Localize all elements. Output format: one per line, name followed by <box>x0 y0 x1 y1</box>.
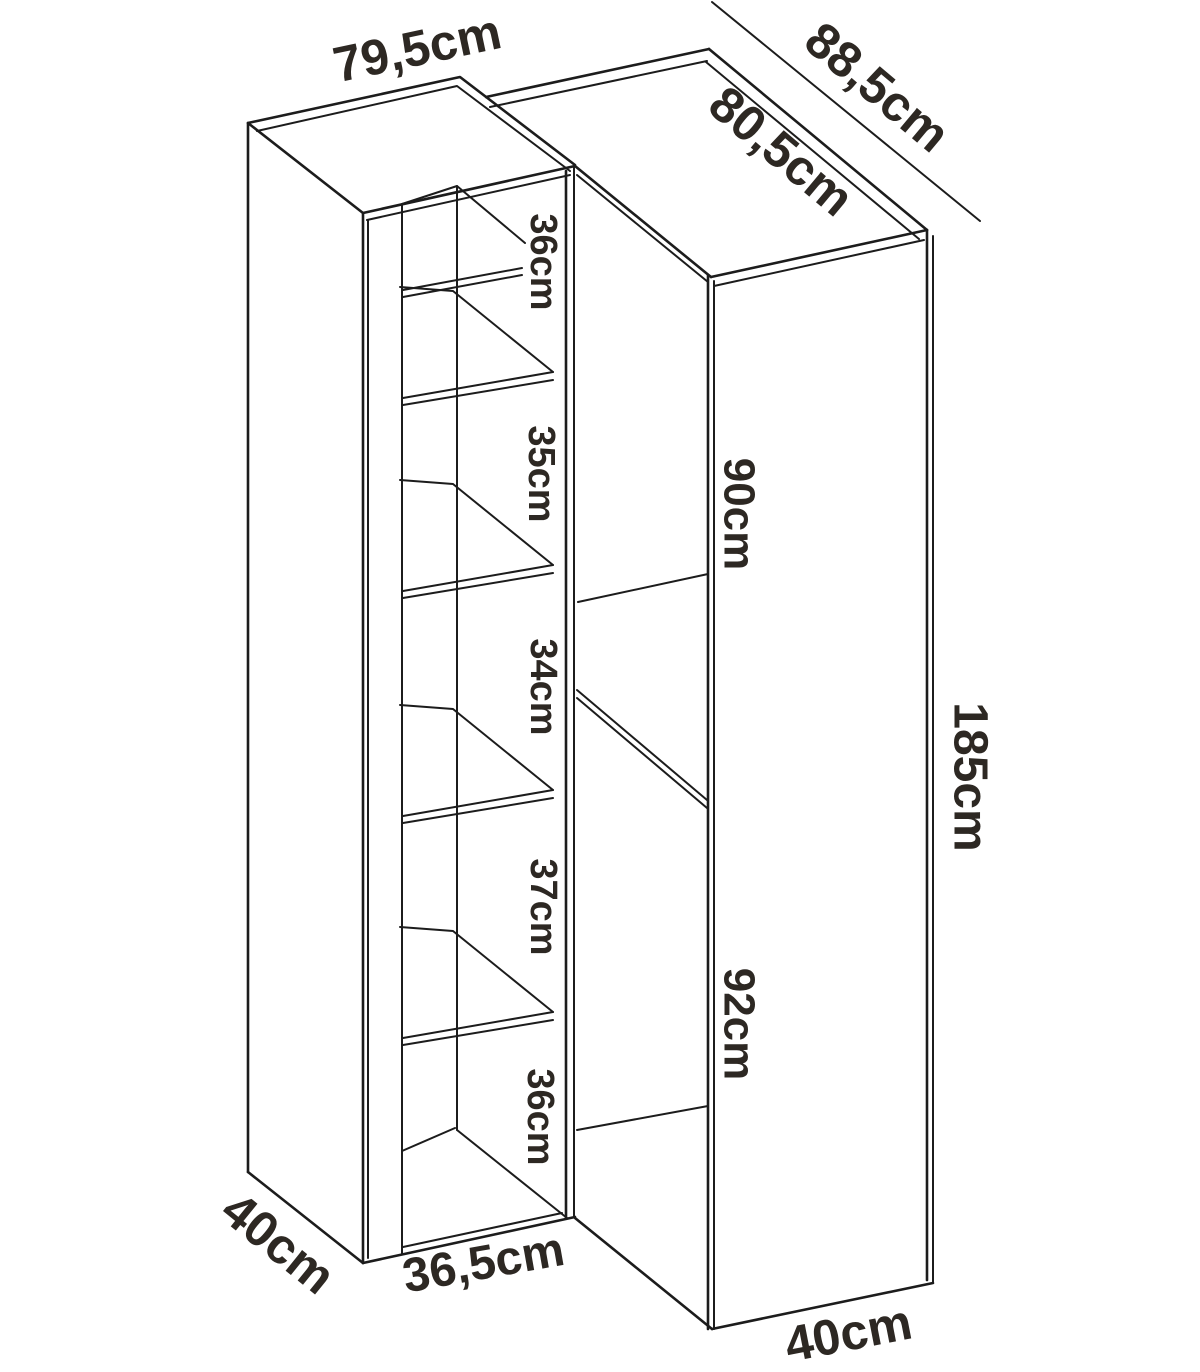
dim-opening-width: 36,5cm <box>399 1223 569 1303</box>
dim-compartment-5-height: 36cm <box>519 1068 561 1165</box>
shelf-1-thickness <box>403 380 553 405</box>
dim-upper-door-height: 90cm <box>714 458 763 571</box>
dim-compartment-3-height: 34cm <box>522 638 564 735</box>
shelf-2-front-edge <box>403 565 553 591</box>
left-unit-top-front-edge <box>363 166 575 213</box>
dimension-labels: 79,5cm 88,5cm 80,5cm 36cm 35cm 34cm 37cm… <box>211 3 996 1372</box>
dim-compartment-1-height: 36cm <box>522 213 564 310</box>
dim-compartment-4-height: 37cm <box>522 858 564 955</box>
shelf-4-thickness <box>403 1020 553 1045</box>
corner-left-face-bottom-edge <box>575 1218 712 1329</box>
dim-lower-door-height: 92cm <box>714 968 763 1081</box>
corner-top-front-left-inner <box>577 175 708 282</box>
shelf-2-thickness <box>403 573 553 598</box>
corner-top-back-left-edge <box>486 49 709 97</box>
dim-total-height: 185cm <box>943 702 996 851</box>
dim-compartment-2-height: 35cm <box>520 425 562 522</box>
shelf-3-thickness <box>403 798 553 823</box>
corner-upper-door-split-line <box>578 574 708 602</box>
dim-corner-top-depth: 80,5cm <box>698 75 864 227</box>
wardrobe-dimension-diagram: 79,5cm 88,5cm 80,5cm 36cm 35cm 34cm 37cm… <box>0 0 1200 1372</box>
dim-left-unit-width: 79,5cm <box>328 3 506 93</box>
top-board-back-edge <box>402 186 525 243</box>
corner-top-front-right-edge <box>711 230 927 277</box>
corner-top-front-left-edge <box>575 166 711 277</box>
shelf-3-front-edge <box>403 790 553 816</box>
corner-lower-door-split-line <box>577 1106 708 1130</box>
wardrobe-diagram-svg: 79,5cm 88,5cm 80,5cm 36cm 35cm 34cm 37cm… <box>0 0 1200 1372</box>
corner-middle-divider-thickness <box>577 698 707 808</box>
bottom-board-back-edge <box>402 1128 455 1151</box>
corner-top-back-left-inner <box>490 61 707 107</box>
shelf-4-front-edge <box>403 1012 553 1038</box>
dim-left-unit-depth: 40cm <box>211 1181 346 1305</box>
corner-middle-divider-edge <box>577 690 707 800</box>
corner-top-front-right-inner <box>714 240 924 286</box>
shelf-1-front-edge <box>403 372 553 398</box>
left-unit-top-left-edge <box>248 123 363 213</box>
dim-corner-side-depth: 40cm <box>780 1294 916 1372</box>
left-unit-top-face-inner-line <box>257 86 570 171</box>
